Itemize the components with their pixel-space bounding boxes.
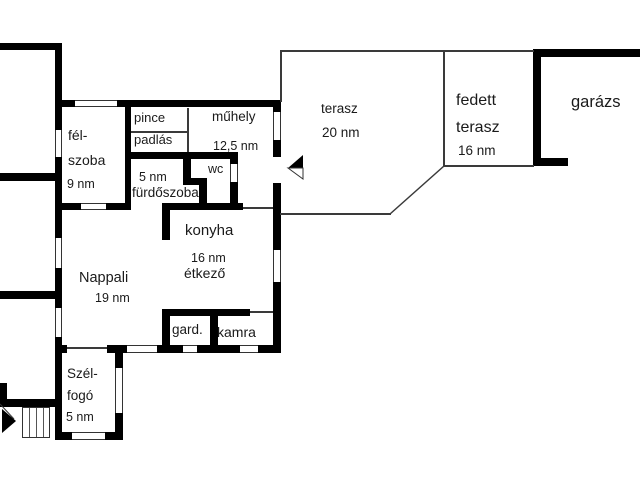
room-area-konyha: 16 nm bbox=[191, 251, 226, 265]
room-area-nappali: 19 nm bbox=[95, 291, 130, 305]
room-area-felszoba: 9 nm bbox=[67, 177, 95, 191]
room-label-gardrob: gard. bbox=[172, 322, 203, 337]
room-label-konyha: konyha bbox=[185, 223, 233, 240]
room-label-padlas: padlás bbox=[134, 133, 172, 148]
room-label-terasz: terasz bbox=[321, 101, 358, 116]
overlay-graphics bbox=[0, 0, 640, 480]
room-label-szelfogo: fogó bbox=[67, 388, 93, 403]
entrance-arrow-icon bbox=[288, 168, 303, 179]
room-area-muhely: 12,5 nm bbox=[213, 139, 258, 153]
room-label-szelfogo: Szél- bbox=[67, 366, 98, 381]
room-label-etkezo: étkező bbox=[184, 266, 225, 282]
room-label-muhely: műhely bbox=[212, 109, 256, 124]
entrance-arrow-icon bbox=[288, 155, 303, 168]
room-label-fedett-terasz: fedett bbox=[456, 92, 496, 110]
room-label-fedett-terasz: terasz bbox=[456, 119, 500, 137]
room-area-fedett-terasz: 16 nm bbox=[458, 143, 496, 158]
terrace-diagonal-edge bbox=[390, 166, 444, 214]
room-area-furdoszoba: 5 nm bbox=[139, 170, 167, 184]
entrance-arrow-icon bbox=[2, 409, 16, 433]
room-label-furdoszoba: fürdőszoba bbox=[132, 185, 199, 200]
room-label-wc: wc bbox=[208, 162, 223, 176]
floor-plan: fél- szoba 9 nm pince padlás műhely 12,5… bbox=[0, 0, 640, 480]
room-label-pince: pince bbox=[134, 111, 165, 126]
room-area-terasz: 20 nm bbox=[322, 125, 360, 140]
room-label-felszoba: fél- bbox=[68, 128, 87, 144]
room-label-nappali: Nappali bbox=[79, 270, 128, 286]
room-area-szelfogo: 5 nm bbox=[66, 410, 94, 424]
room-label-felszoba: szoba bbox=[68, 153, 105, 169]
room-label-kamra: kamra bbox=[217, 325, 256, 341]
room-label-garazs: garázs bbox=[571, 93, 621, 111]
